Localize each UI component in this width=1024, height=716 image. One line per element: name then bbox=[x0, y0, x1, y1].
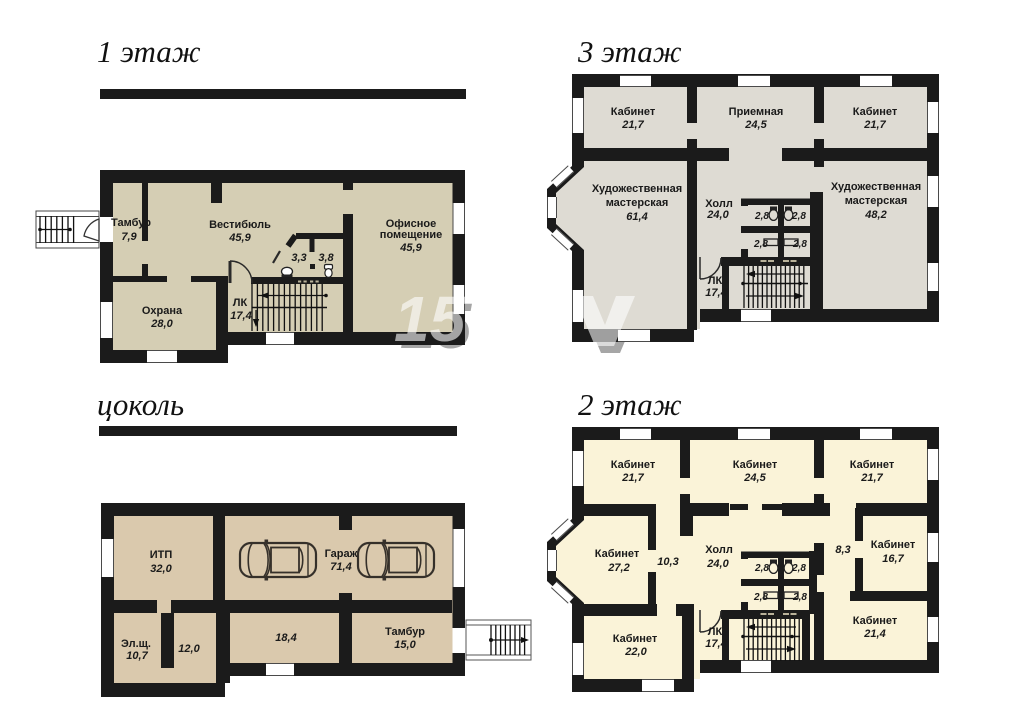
svg-text:ИТП: ИТП bbox=[150, 549, 173, 561]
svg-text:21,7: 21,7 bbox=[860, 472, 883, 484]
svg-text:28,0: 28,0 bbox=[150, 318, 173, 330]
svg-text:15: 15 bbox=[394, 283, 467, 355]
svg-text:2,8: 2,8 bbox=[753, 239, 768, 250]
svg-text:2,8: 2,8 bbox=[792, 239, 807, 250]
svg-text:Холл: Холл bbox=[705, 544, 733, 556]
svg-text:3 этаж: 3 этаж bbox=[577, 34, 682, 69]
svg-text:ЛК: ЛК bbox=[708, 626, 723, 638]
svg-text:цоколь: цоколь bbox=[97, 387, 184, 422]
svg-text:24,0: 24,0 bbox=[706, 209, 729, 221]
svg-text:22,0: 22,0 bbox=[624, 646, 647, 658]
svg-text:Кабинет: Кабинет bbox=[733, 459, 778, 471]
svg-text:Кабинет: Кабинет bbox=[595, 548, 640, 560]
svg-text:Кабинет: Кабинет bbox=[853, 106, 898, 118]
svg-text:45,9: 45,9 bbox=[228, 232, 251, 244]
svg-text:27,2: 27,2 bbox=[607, 562, 629, 574]
svg-text:71,4: 71,4 bbox=[330, 561, 351, 573]
svg-text:3,8: 3,8 bbox=[318, 252, 334, 264]
svg-text:2,8: 2,8 bbox=[792, 592, 807, 603]
svg-text:Кабинет: Кабинет bbox=[871, 539, 916, 551]
svg-text:17,4: 17,4 bbox=[705, 287, 726, 299]
svg-text:2,8: 2,8 bbox=[791, 563, 806, 574]
svg-text:21,4: 21,4 bbox=[863, 628, 885, 640]
svg-text:24,0: 24,0 bbox=[706, 558, 729, 570]
svg-text:17,4: 17,4 bbox=[705, 638, 726, 650]
svg-text:10,7: 10,7 bbox=[126, 650, 148, 662]
svg-text:2,8: 2,8 bbox=[791, 211, 806, 222]
svg-text:21,7: 21,7 bbox=[863, 119, 886, 131]
svg-text:2,8: 2,8 bbox=[754, 563, 769, 574]
svg-text:Кабинет: Кабинет bbox=[853, 615, 898, 627]
svg-text:12,0: 12,0 bbox=[178, 643, 200, 655]
svg-text:21,7: 21,7 bbox=[621, 119, 644, 131]
svg-text:Тамбур: Тамбур bbox=[385, 626, 425, 638]
svg-text:Художественная: Художественная bbox=[592, 183, 682, 195]
svg-text:17,4: 17,4 bbox=[230, 310, 251, 322]
svg-text:Художественная: Художественная bbox=[831, 181, 921, 193]
svg-text:2 этаж: 2 этаж bbox=[578, 387, 682, 422]
svg-text:61,4: 61,4 bbox=[626, 211, 647, 223]
svg-text:32,0: 32,0 bbox=[150, 563, 172, 575]
svg-text:18,4: 18,4 bbox=[275, 632, 296, 644]
svg-text:24,5: 24,5 bbox=[743, 472, 766, 484]
svg-text:Кабинет: Кабинет bbox=[611, 106, 656, 118]
svg-text:15,0: 15,0 bbox=[394, 639, 416, 651]
svg-text:Вестибюль: Вестибюль bbox=[209, 219, 271, 231]
svg-text:Кабинет: Кабинет bbox=[611, 459, 656, 471]
svg-text:48,2: 48,2 bbox=[864, 209, 886, 221]
svg-text:24,5: 24,5 bbox=[744, 119, 767, 131]
svg-text:8,3: 8,3 bbox=[835, 544, 850, 556]
svg-text:Охрана: Охрана bbox=[142, 305, 183, 317]
svg-text:помещение: помещение bbox=[380, 229, 442, 241]
svg-text:2,8: 2,8 bbox=[753, 592, 768, 603]
svg-text:7,9: 7,9 bbox=[121, 231, 137, 243]
svg-text:2,8: 2,8 bbox=[754, 211, 769, 222]
svg-text:Кабинет: Кабинет bbox=[850, 459, 895, 471]
svg-text:Тамбур: Тамбур bbox=[111, 217, 151, 229]
svg-text:45,9: 45,9 bbox=[399, 242, 422, 254]
svg-text:10,3: 10,3 bbox=[657, 556, 678, 568]
svg-text:ЛК: ЛК bbox=[708, 275, 723, 287]
svg-text:Приемная: Приемная bbox=[729, 106, 784, 118]
svg-text:21,7: 21,7 bbox=[621, 472, 644, 484]
svg-text:1 этаж: 1 этаж bbox=[97, 34, 201, 69]
svg-text:мастерская: мастерская bbox=[845, 195, 908, 207]
svg-text:мастерская: мастерская bbox=[606, 197, 669, 209]
svg-text:ЛК: ЛК bbox=[233, 297, 248, 309]
svg-text:Кабинет: Кабинет bbox=[613, 633, 658, 645]
svg-text:3,3: 3,3 bbox=[291, 252, 306, 264]
svg-text:16,7: 16,7 bbox=[882, 553, 904, 565]
svg-text:Эл.щ.: Эл.щ. bbox=[121, 638, 151, 650]
svg-text:Гараж: Гараж bbox=[325, 548, 358, 560]
